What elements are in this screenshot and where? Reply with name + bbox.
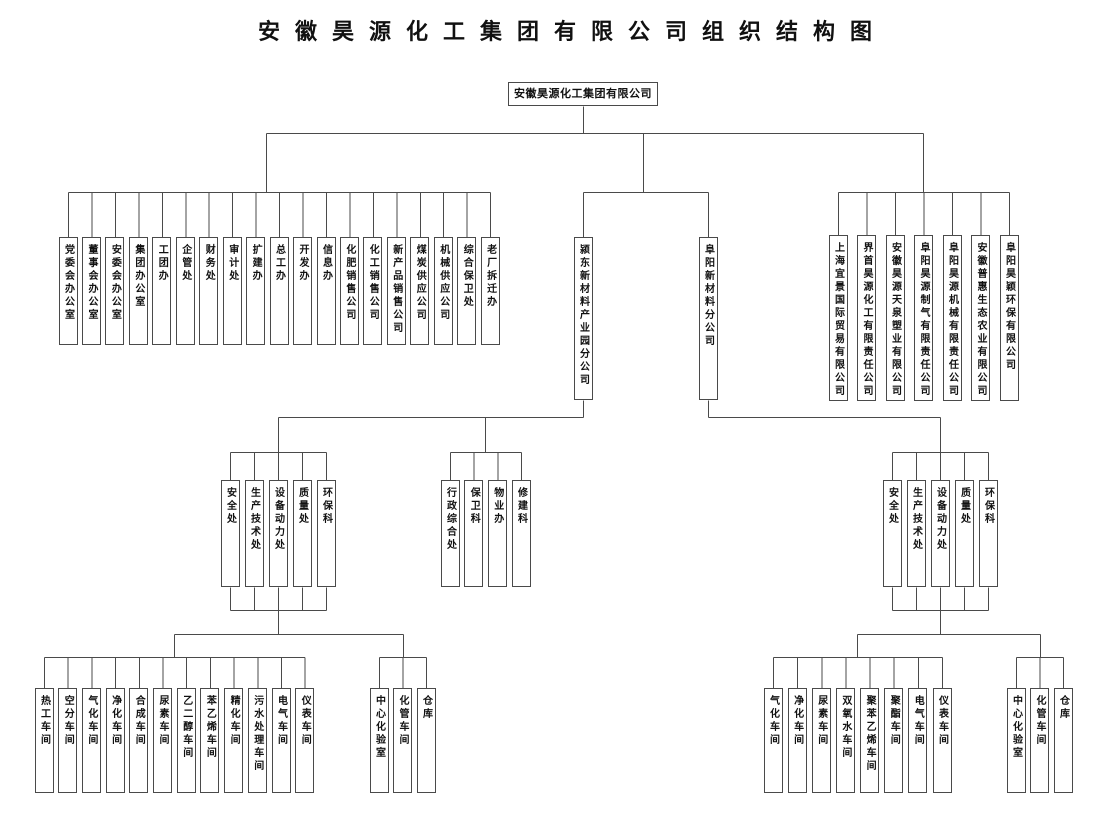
yingdong-workshops-3: 气化车间 [82,688,101,793]
yingdong-admin-depts-5: 环保科 [317,480,336,587]
yingdong-workshops-12: 仪表车间 [295,688,314,793]
yingdong-workshops-4: 净化车间 [106,688,125,793]
hq-departments-14: 化工销售公司 [363,237,382,345]
org-chart-page: 安徽昊源化工集团有限公司组织结构图 安徽昊源化工集团有限公司 党委会办公室董事会… [0,0,1100,825]
fuyang-admin-depts-5: 环保科 [979,480,998,587]
fuyang-workshops-6: 聚酯车间 [884,688,903,793]
subsidiaries-2: 界首昊源化工有限责任公司 [857,235,876,401]
yingdong-support-units-3: 仓库 [417,688,436,793]
yingdong-admin-depts-4: 质量处 [293,480,312,587]
fuyang-admin-depts-3: 设备动力处 [931,480,950,587]
yingdong-service-depts-4: 修建科 [512,480,531,587]
hq-departments-5: 工团办 [152,237,171,345]
yingdong-workshops-1: 热工车间 [35,688,54,793]
yingdong-admin-depts-1: 安全处 [221,480,240,587]
hq-departments-8: 审计处 [223,237,242,345]
hq-departments-12: 信息办 [317,237,336,345]
yingdong-workshops-6: 尿素车间 [153,688,172,793]
fuyang-support-units-2: 化管车间 [1030,688,1049,793]
subsidiaries-3: 安徽昊源天泉塑业有限公司 [886,235,905,401]
hq-departments-1: 党委会办公室 [59,237,78,345]
yingdong-service-depts-3: 物业办 [488,480,507,587]
subsidiaries-5: 阜阳昊源机械有限责任公司 [943,235,962,401]
yingdong-workshops-8: 苯乙烯车间 [200,688,219,793]
fuyang-workshops-2: 净化车间 [788,688,807,793]
hq-departments-7: 财务处 [199,237,218,345]
yingdong-workshops-5: 合成车间 [129,688,148,793]
hq-departments-3: 安委会办公室 [105,237,124,345]
fuyang-support-units-3: 仓库 [1054,688,1073,793]
yingdong-workshops-11: 电气车间 [272,688,291,793]
yingdong-workshops-7: 乙二醇车间 [177,688,196,793]
yingdong-workshops-2: 空分车间 [58,688,77,793]
branch-companies-1: 颍东新材料产业园分公司 [574,237,593,400]
hq-departments-16: 煤炭供应公司 [410,237,429,345]
fuyang-admin-depts-1: 安全处 [883,480,902,587]
yingdong-service-depts-1: 行政综合处 [441,480,460,587]
fuyang-workshops-7: 电气车间 [908,688,927,793]
hq-departments-13: 化肥销售公司 [340,237,359,345]
hq-departments-15: 新产品销售公司 [387,237,406,345]
subsidiaries-1: 上海宜景国际贸易有限公司 [829,235,848,401]
fuyang-support-units-1: 中心化验室 [1007,688,1026,793]
hq-departments-17: 机械供应公司 [434,237,453,345]
hq-departments-6: 企管处 [176,237,195,345]
hq-departments-11: 开发办 [293,237,312,345]
fuyang-admin-depts-2: 生产技术处 [907,480,926,587]
fuyang-workshops-8: 仪表车间 [933,688,952,793]
fuyang-workshops-4: 双氧水车间 [836,688,855,793]
fuyang-workshops-5: 聚苯乙烯车间 [860,688,879,793]
hq-departments-18: 综合保卫处 [457,237,476,345]
fuyang-workshops-3: 尿素车间 [812,688,831,793]
yingdong-workshops-9: 精化车间 [224,688,243,793]
root-node: 安徽昊源化工集团有限公司 [508,82,658,106]
yingdong-support-units-2: 化管车间 [393,688,412,793]
hq-departments-9: 扩建办 [246,237,265,345]
hq-departments-4: 集团办公室 [129,237,148,345]
yingdong-workshops-10: 污水处理车间 [248,688,267,793]
subsidiaries-4: 阜阳昊源制气有限责任公司 [914,235,933,401]
hq-departments-10: 总工办 [270,237,289,345]
hq-departments-19: 老厂拆迁办 [481,237,500,345]
subsidiaries-7: 阜阳昊颖环保有限公司 [1000,235,1019,401]
hq-departments-2: 董事会办公室 [82,237,101,345]
yingdong-admin-depts-3: 设备动力处 [269,480,288,587]
yingdong-service-depts-2: 保卫科 [464,480,483,587]
fuyang-admin-depts-4: 质量处 [955,480,974,587]
fuyang-workshops-1: 气化车间 [764,688,783,793]
yingdong-support-units-1: 中心化验室 [370,688,389,793]
subsidiaries-6: 安徽普惠生态农业有限公司 [971,235,990,401]
branch-companies-2: 阜阳新材料分公司 [699,237,718,400]
yingdong-admin-depts-2: 生产技术处 [245,480,264,587]
